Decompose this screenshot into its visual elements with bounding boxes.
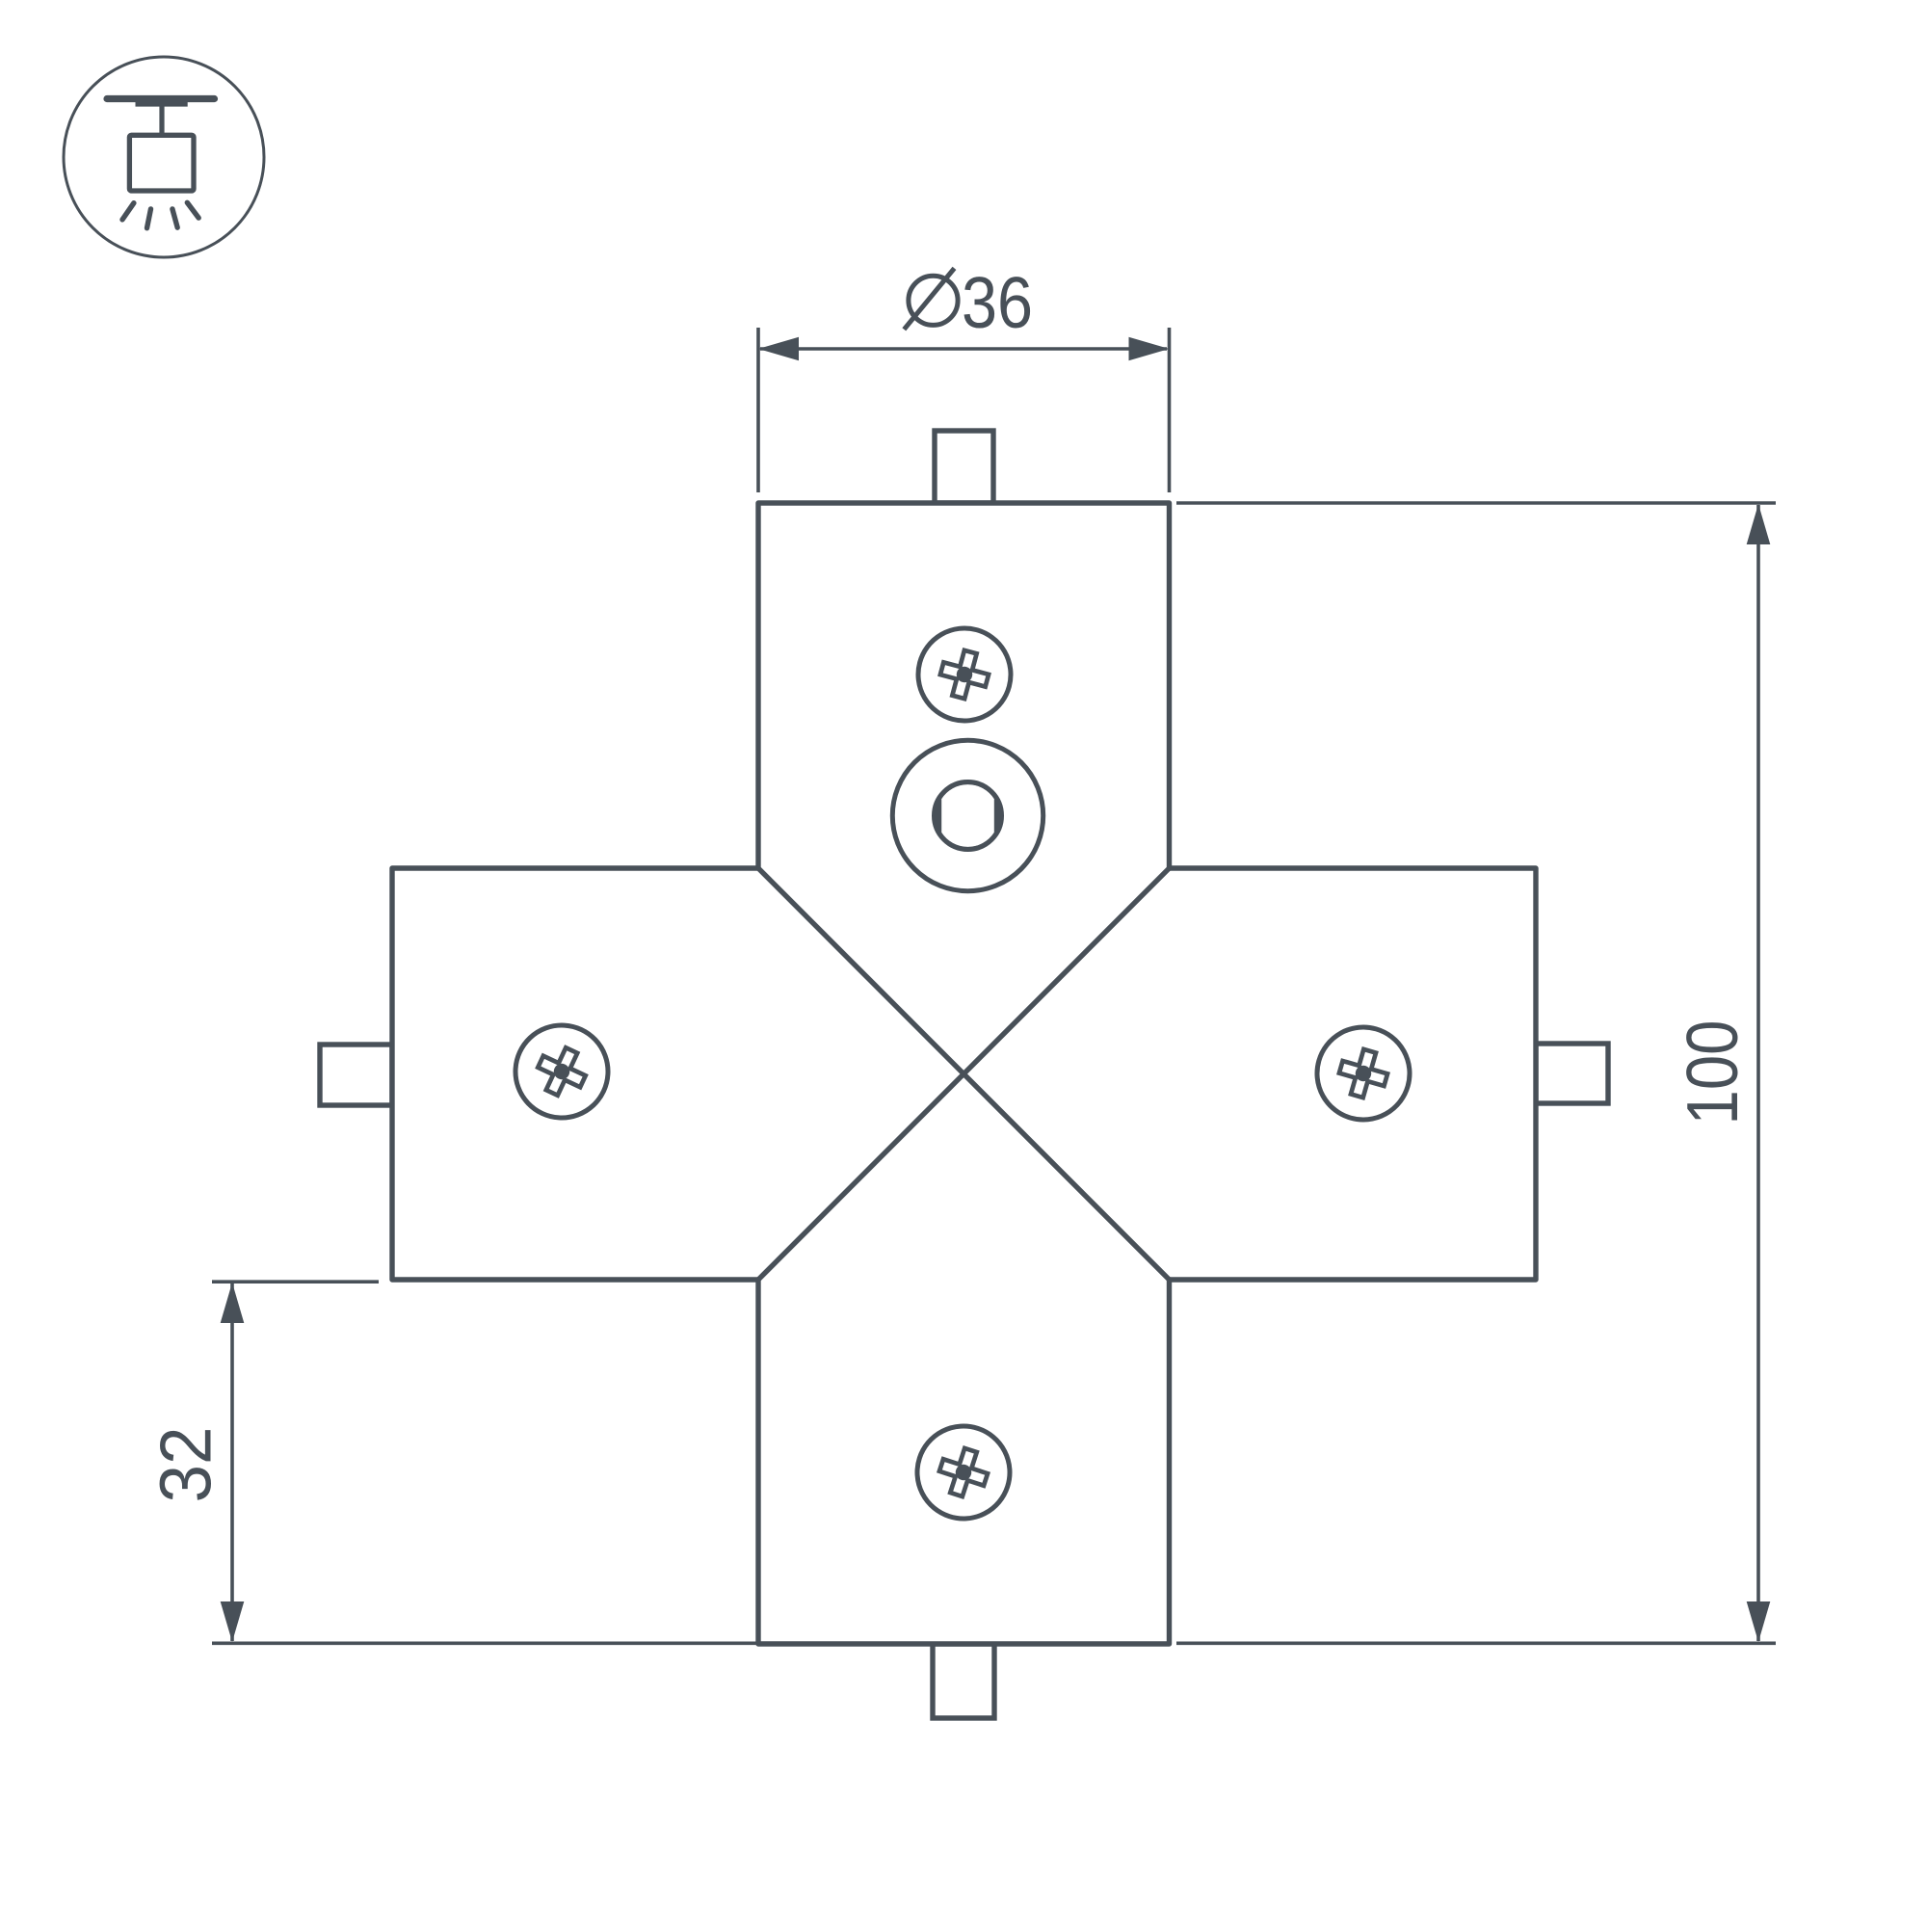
svg-text:36: 36 <box>962 262 1033 343</box>
svg-text:32: 32 <box>145 1427 226 1503</box>
svg-text:100: 100 <box>1672 1020 1753 1125</box>
